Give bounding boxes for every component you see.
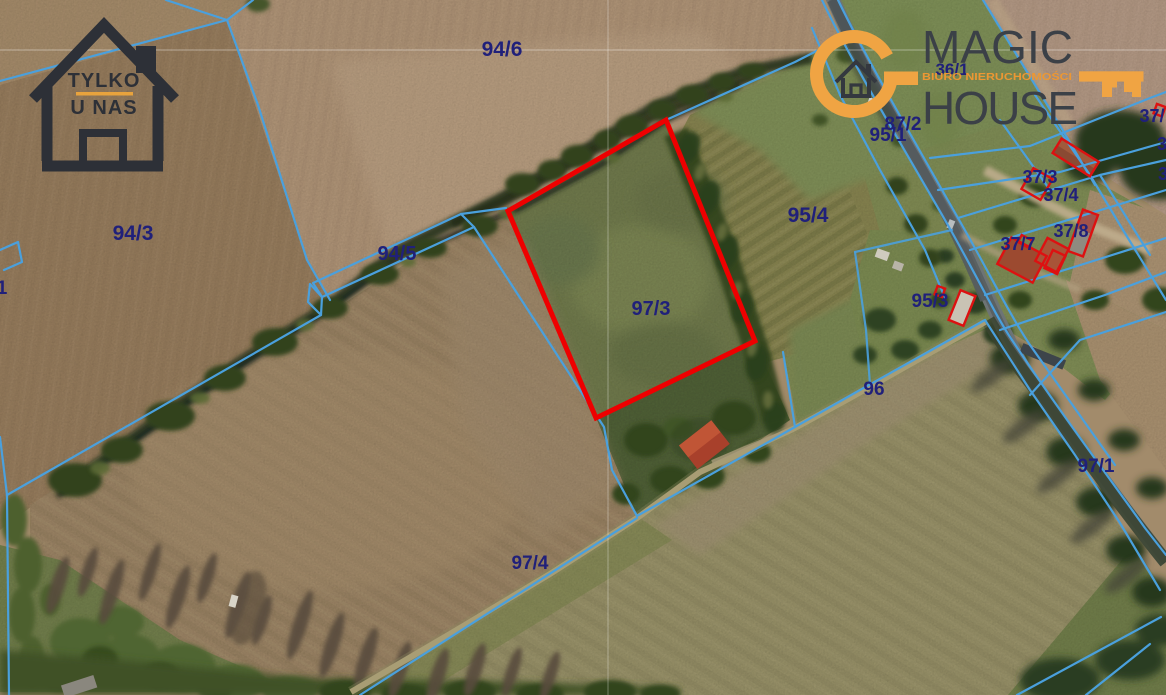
svg-text:3: 3 — [1157, 134, 1166, 154]
svg-text:87/2: 87/2 — [885, 114, 922, 135]
svg-text:37/3: 37/3 — [1022, 167, 1057, 187]
svg-text:U NAS: U NAS — [70, 97, 137, 119]
svg-text:37/8: 37/8 — [1053, 221, 1088, 241]
svg-text:3: 3 — [1158, 164, 1166, 184]
svg-text:MAGIC: MAGIC — [922, 21, 1073, 73]
svg-text:1: 1 — [0, 278, 8, 299]
svg-text:95/3: 95/3 — [912, 291, 949, 312]
svg-text:37/4: 37/4 — [1043, 185, 1078, 205]
svg-text:94/5: 94/5 — [378, 243, 417, 265]
svg-text:97/4: 97/4 — [512, 553, 549, 574]
svg-text:37/7: 37/7 — [1000, 234, 1035, 254]
svg-text:94/6: 94/6 — [482, 38, 523, 61]
svg-text:HOUSE: HOUSE — [922, 82, 1078, 134]
svg-text:94/3: 94/3 — [113, 222, 154, 245]
svg-text:95/4: 95/4 — [788, 204, 829, 227]
svg-text:96: 96 — [863, 379, 884, 400]
svg-text:97/1: 97/1 — [1078, 456, 1115, 477]
svg-text:TYLKO: TYLKO — [68, 70, 141, 92]
svg-text:37/: 37/ — [1139, 106, 1164, 126]
svg-text:97/3: 97/3 — [632, 298, 671, 320]
